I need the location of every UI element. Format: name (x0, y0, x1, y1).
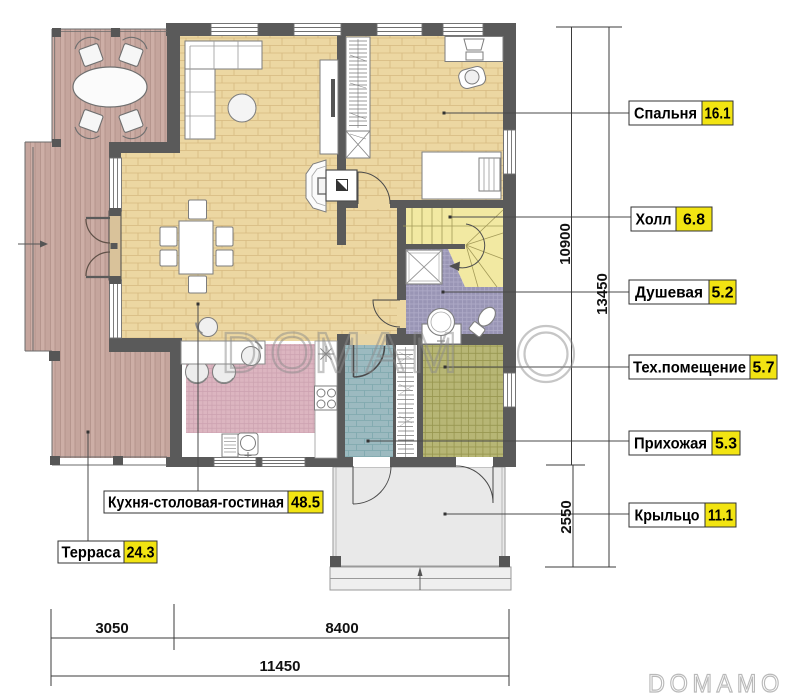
svg-text:5.7: 5.7 (753, 360, 775, 377)
svg-text:5.3: 5.3 (715, 436, 737, 453)
svg-text:DOMAM: DOMAM (221, 321, 457, 385)
svg-text:Холл: Холл (636, 212, 672, 229)
svg-text:Тех.помещение: Тех.помещение (633, 360, 746, 377)
svg-text:16.1: 16.1 (705, 106, 731, 123)
svg-text:Крыльцо: Крыльцо (635, 508, 700, 525)
svg-text:Кухня-столовая-гостиная: Кухня-столовая-гостиная (108, 495, 284, 512)
svg-text:11450: 11450 (260, 658, 301, 675)
svg-text:Терраса: Терраса (62, 545, 121, 562)
svg-text:11.1: 11.1 (708, 508, 733, 525)
svg-text:3050: 3050 (95, 620, 128, 637)
svg-text:8400: 8400 (325, 620, 358, 637)
svg-text:Душевая: Душевая (635, 285, 703, 302)
svg-text:10900: 10900 (557, 223, 574, 265)
svg-text:6.8: 6.8 (683, 212, 705, 229)
svg-text:24.3: 24.3 (127, 545, 155, 562)
svg-text:Прихожая: Прихожая (634, 436, 707, 453)
svg-text:DOMAMO: DOMAMO (648, 670, 784, 697)
svg-text:2550: 2550 (558, 500, 575, 533)
svg-text:5.2: 5.2 (712, 285, 734, 302)
svg-text:Спальня: Спальня (634, 106, 697, 123)
svg-text:48.5: 48.5 (291, 495, 320, 512)
svg-text:13450: 13450 (594, 273, 611, 315)
